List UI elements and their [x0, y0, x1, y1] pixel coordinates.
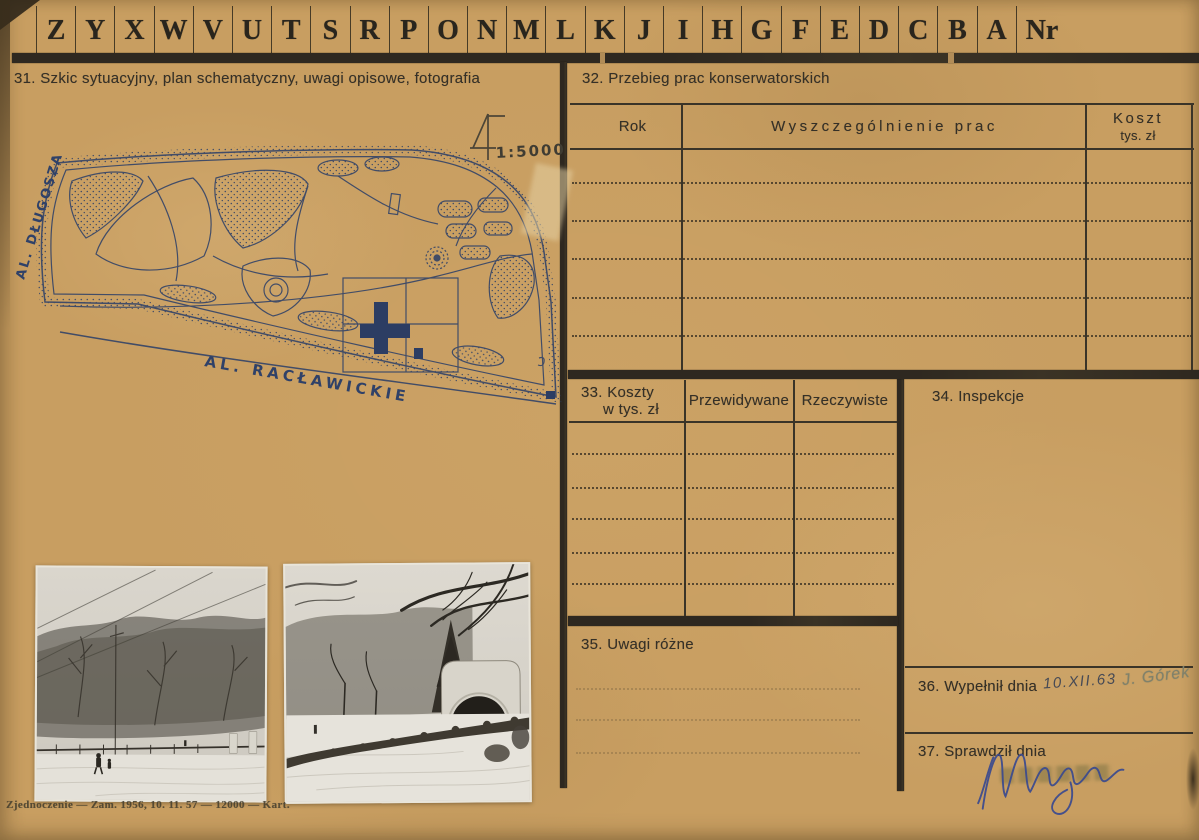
- winter-street-with-trees-photo: [34, 565, 267, 802]
- index-letter: J: [624, 6, 663, 53]
- table32-right-rule: [1191, 104, 1193, 370]
- table32-top-rule: [570, 103, 1194, 105]
- alphabet-index-strip: Z Y X W V U T S R P O N M L K J I H G F …: [36, 6, 1076, 53]
- index-letter: F: [781, 6, 820, 53]
- col-header-cost-1: Koszt: [1090, 110, 1186, 127]
- card-edge-shadow: [0, 0, 10, 330]
- table33-column-rule: [684, 380, 686, 616]
- index-letter: R: [350, 6, 389, 53]
- col-header-cost-2: tys. zł: [1090, 128, 1186, 143]
- section32-bottom-bar: [568, 370, 1199, 379]
- index-letter: D: [859, 6, 898, 53]
- dotted-row-line: [572, 258, 1192, 260]
- index-letter: T: [271, 6, 310, 53]
- index-letter: O: [428, 6, 467, 53]
- dotted-row-line: [572, 487, 894, 489]
- header-rule-bar: [12, 53, 1199, 63]
- inspections-vertical-divider: [897, 378, 904, 791]
- index-letter: V: [193, 6, 232, 53]
- index-letter: P: [389, 6, 428, 53]
- index-letter: E: [820, 6, 859, 53]
- table32-header-rule: [570, 148, 1194, 150]
- dotted-row-line: [572, 220, 1192, 222]
- table32-column-rule: [1085, 104, 1087, 370]
- index-letter: B: [937, 6, 976, 53]
- index-letter: Y: [75, 6, 114, 53]
- card-edge-stain: [1186, 748, 1199, 810]
- handwritten-date: 10.XII.63: [1042, 670, 1117, 692]
- park-band-shell-in-snow-photo: [283, 562, 532, 804]
- section33-title-line1: 33. Koszty: [581, 384, 654, 401]
- section31-title: 31. Szkic sytuacyjny, plan schematyczny,…: [14, 70, 480, 87]
- park-plan-sketch: 1:5000 AL. DŁUGOSZA AL. RACŁAWICKIE: [8, 106, 564, 418]
- section33-title-line2: w tys. zł: [603, 401, 659, 418]
- dotted-row-line: [572, 518, 894, 520]
- signature: [975, 738, 1155, 838]
- dotted-row-line: [572, 453, 894, 455]
- section37-top-rule: [905, 732, 1193, 734]
- table33-header-rule: [569, 421, 897, 423]
- index-letter: I: [663, 6, 702, 53]
- faint-dotted-line: [576, 688, 860, 690]
- map-scale-label: 1:5000: [495, 140, 564, 162]
- nr-label: Nr: [1016, 6, 1076, 53]
- index-letter: L: [545, 6, 584, 53]
- section34-title: 34. Inspekcje: [932, 388, 1024, 405]
- dotted-row-line: [572, 335, 1192, 337]
- section32-title: 32. Przebieg prac konserwatorskich: [582, 70, 830, 87]
- index-letter: W: [154, 6, 193, 53]
- index-letter: H: [702, 6, 741, 53]
- table33-column-rule: [793, 380, 795, 616]
- dotted-row-line: [572, 552, 894, 554]
- faint-dotted-line: [576, 719, 860, 721]
- section35-title: 35. Uwagi różne: [581, 636, 694, 653]
- print-shop-imprint: Zjednoczenie — Zam. 1956, 10. 11. 57 — 1…: [6, 799, 290, 811]
- section36-title: 36. Wypełnił dnia: [918, 678, 1037, 695]
- col-header-planned: Przewidywane: [686, 392, 792, 409]
- dotted-row-line: [572, 182, 1192, 184]
- index-letter: N: [467, 6, 506, 53]
- index-letter: Z: [36, 6, 75, 53]
- col-header-actual: Rzeczywiste: [795, 392, 895, 409]
- bar-gap: [948, 53, 954, 63]
- index-letter: C: [898, 6, 937, 53]
- dotted-row-line: [572, 297, 1192, 299]
- index-letter: U: [232, 6, 271, 53]
- table32-column-rule: [681, 104, 683, 370]
- archival-record-card: Z Y X W V U T S R P O N M L K J I H G F …: [0, 0, 1199, 840]
- index-letter: A: [977, 6, 1016, 53]
- index-letter: M: [506, 6, 545, 53]
- index-letter: K: [585, 6, 624, 53]
- dotted-row-line: [572, 583, 894, 585]
- index-letter: X: [114, 6, 153, 53]
- section33-bottom-bar: [568, 616, 898, 626]
- index-letter: G: [741, 6, 780, 53]
- bar-gap: [600, 53, 605, 63]
- index-letter: S: [310, 6, 349, 53]
- col-header-rok: Rok: [595, 118, 670, 135]
- col-header-works: Wyszczególnienie prac: [692, 118, 1077, 135]
- faint-dotted-line: [576, 752, 860, 754]
